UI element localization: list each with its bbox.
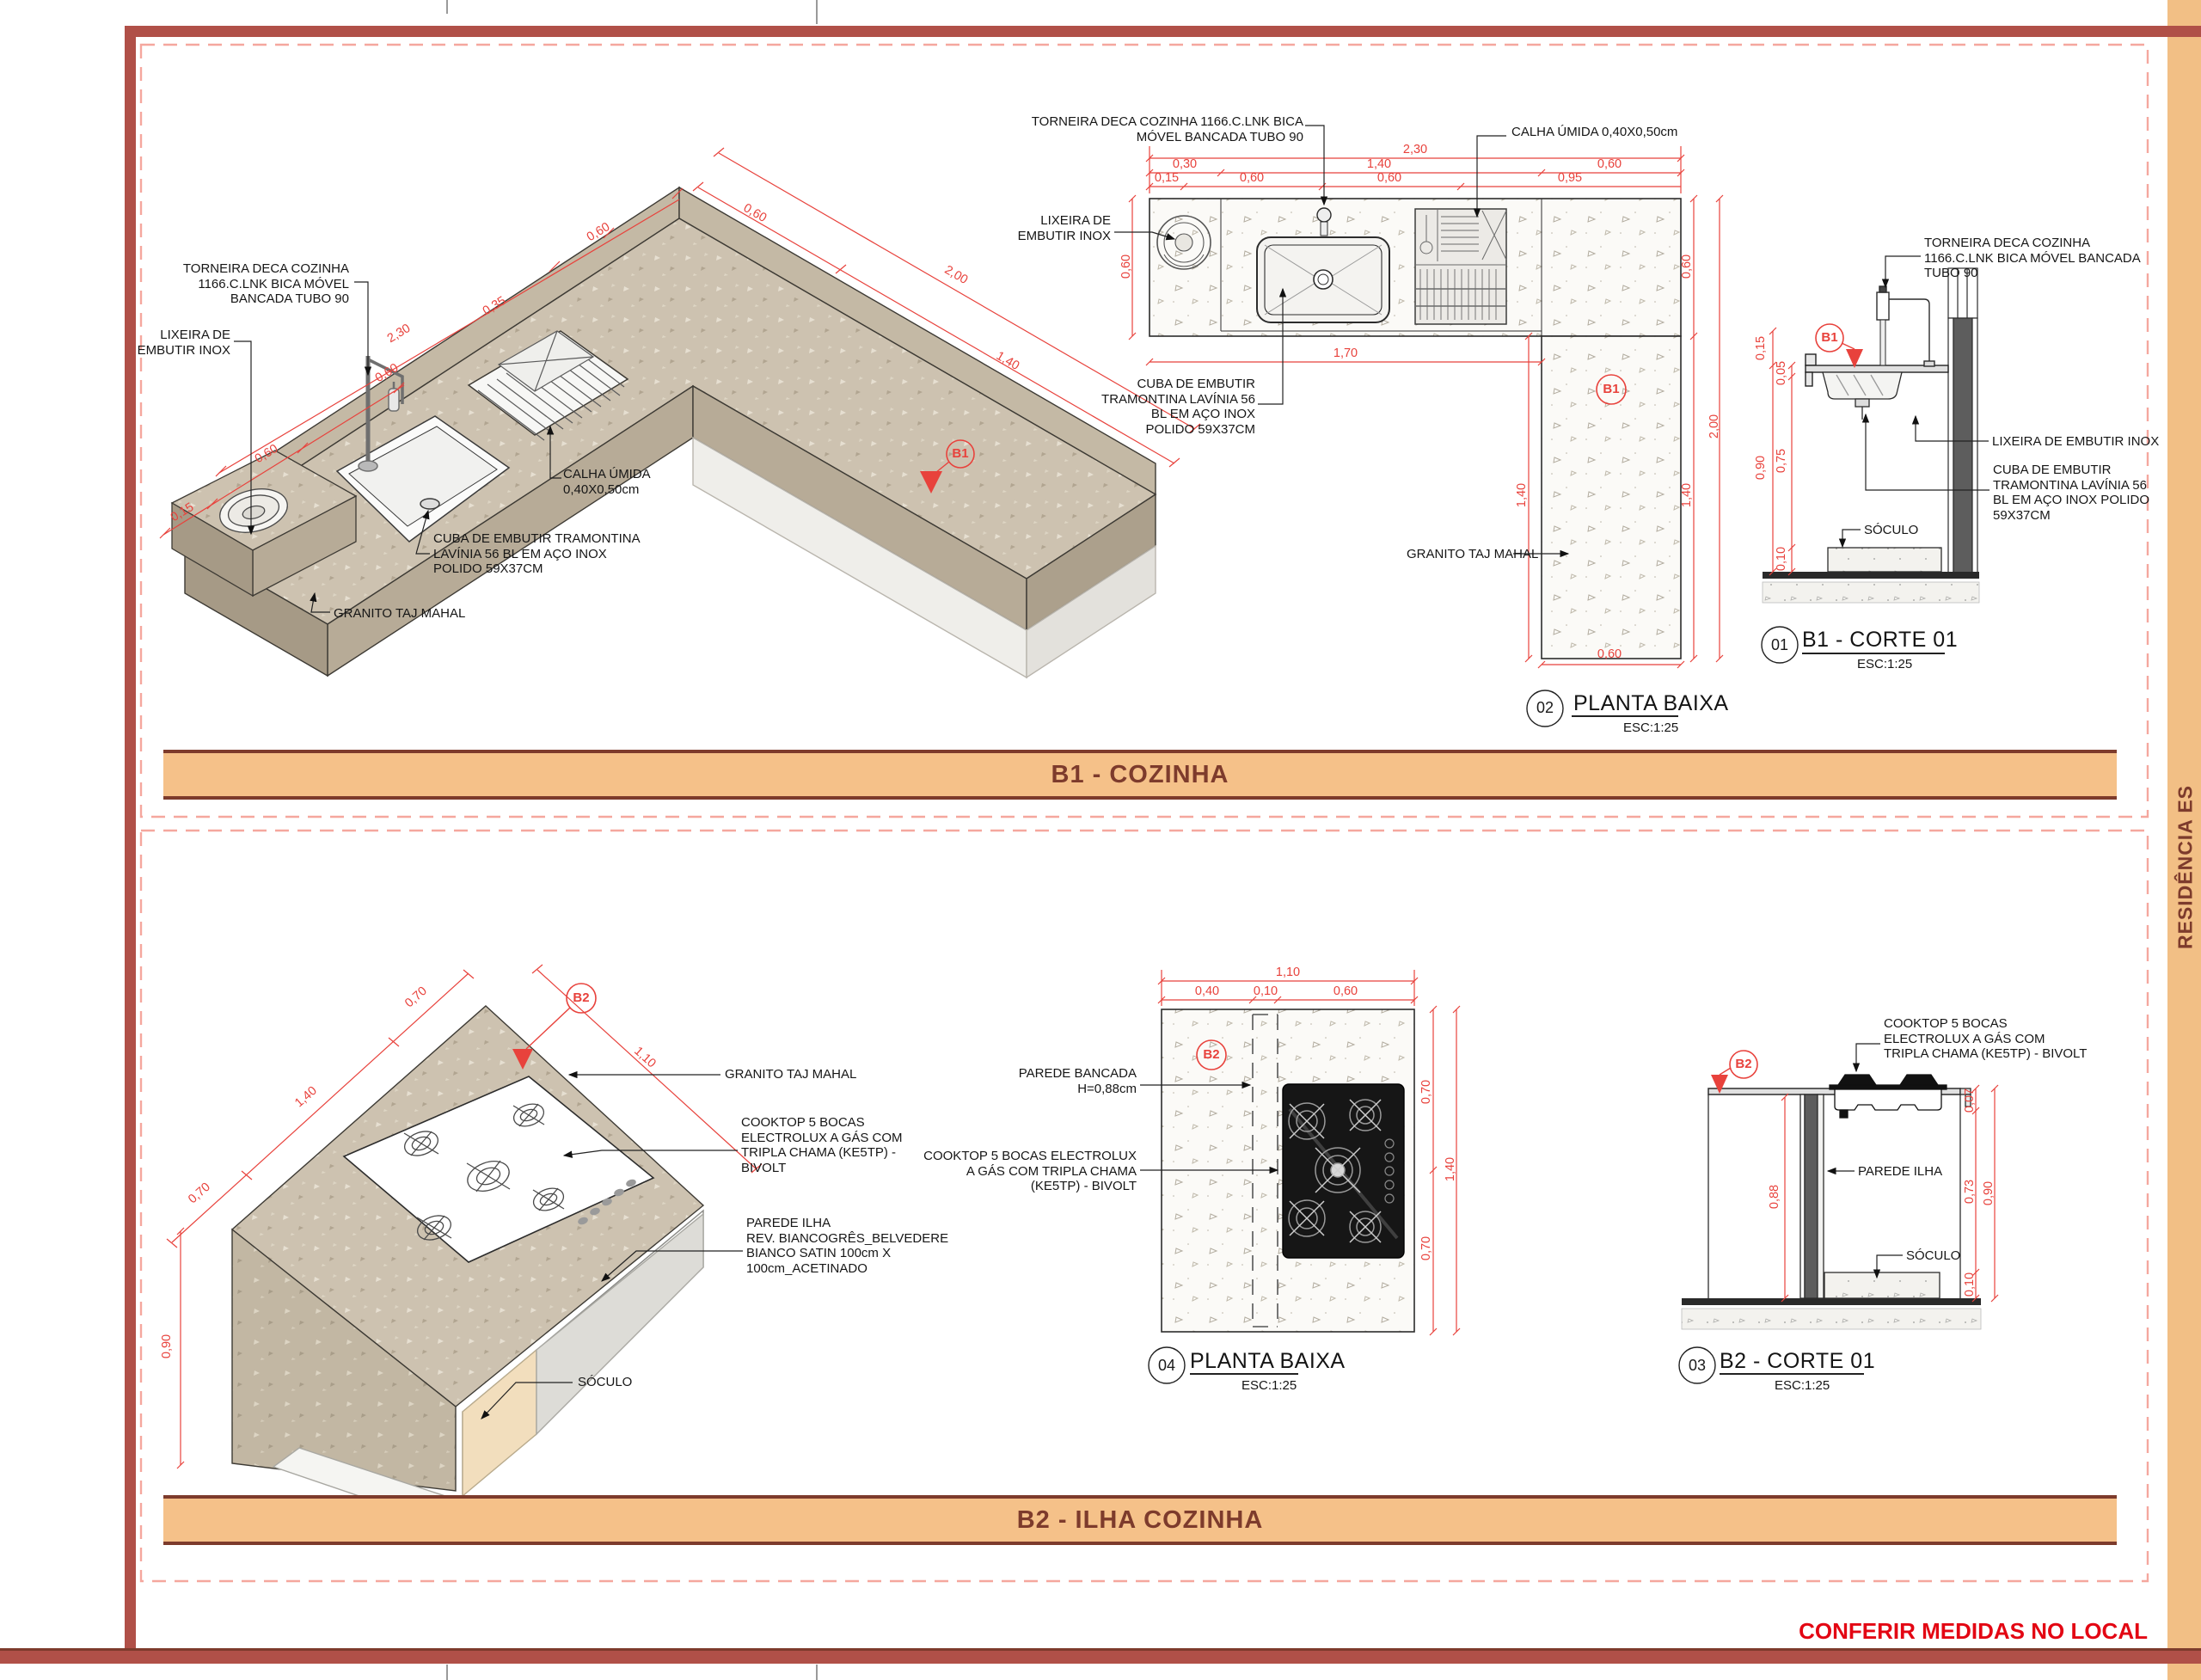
label-cuba-corte: CUBA DE EMBUTIR TRAMONTINA LAVÍNIA 56 BL…: [1993, 463, 2149, 524]
title-num-02: 02: [1526, 699, 1564, 717]
dim: 0,70: [1419, 1073, 1433, 1111]
dim: 0,70: [1419, 1229, 1433, 1267]
marker-b2-iso: B2: [562, 990, 600, 1005]
marker-b1-corte: B1: [1811, 330, 1848, 345]
marker-b1-iso: B1: [941, 446, 979, 461]
dim: 0,07: [1963, 1082, 1977, 1119]
sheet-border-top: [125, 26, 2201, 37]
drawing-sheet: RESIDÊNCIA ES CONFERIR MEDIDAS NO LOCAL …: [0, 0, 2201, 1680]
dim: 0,75: [1775, 442, 1788, 480]
title-corte-01: B1 - CORTE 01: [1802, 628, 1958, 653]
faucet-section: [1877, 286, 1934, 366]
sheet-border-bottom: [0, 1648, 2201, 1664]
dim: 0,60: [1680, 248, 1694, 285]
dim: 2,30: [1396, 143, 1434, 156]
marker-b2-corte: B2: [1725, 1057, 1763, 1071]
scale-04: ESC:1:25: [1242, 1378, 1297, 1393]
label-cooktop-corte2: COOKTOP 5 BOCAS ELECTROLUX A GÁS COM TRI…: [1884, 1016, 2087, 1062]
marker-b1-plan: B1: [1592, 382, 1630, 396]
soculo-b1: [1828, 548, 1941, 572]
scale-03: ESC:1:25: [1775, 1378, 1830, 1393]
label-lixeira-corte: LIXEIRA DE EMBUTIR INOX: [1992, 434, 2159, 450]
drying-rack-plan: [1415, 209, 1506, 324]
b2-corte-floor: [1682, 1298, 1981, 1329]
dim: 1,40: [1680, 476, 1694, 514]
dim: 0,60: [1327, 984, 1364, 998]
label-calha-plan: CALHA ÚMIDA 0,40X0,50cm: [1511, 125, 1677, 140]
b2-iso-drawing: [167, 965, 762, 1517]
label-parede-plan2: PAREDE BANCADA H=0,88cm: [1019, 1066, 1137, 1096]
cooktop-plan: [1283, 1084, 1404, 1258]
b1-corte-drawing: [1762, 256, 1989, 663]
label-granito-iso: GRANITO TAJ MAHAL: [334, 606, 465, 622]
dim: 0,90: [1754, 449, 1768, 487]
dim: 1,40: [1444, 1150, 1457, 1188]
site-check-note: CONFERIR MEDIDAS NO LOCAL: [1799, 1618, 2148, 1645]
label-soculo-iso2: SÓCULO: [578, 1375, 632, 1390]
label-calha-iso: CALHA ÚMIDA 0,40X0,50cm: [563, 467, 651, 497]
scale-01: ESC:1:25: [1857, 657, 1912, 671]
dim: 0,15: [1754, 329, 1768, 367]
dim: 0,90: [1982, 1174, 1996, 1212]
banner-b1-label: B1 - COZINHA: [1051, 761, 1229, 789]
dim: 1,10: [1269, 966, 1307, 979]
label-cooktop-plan2: COOKTOP 5 BOCAS ELECTROLUX A GÁS COM TRI…: [923, 1149, 1137, 1194]
label-torneira-iso: TORNEIRA DECA COZINHA 1166.C.LNK BICA MÓ…: [183, 261, 349, 307]
dim: 0,60: [1370, 171, 1408, 185]
banner-b1: B1 - COZINHA: [163, 750, 2117, 800]
label-cooktop-iso2: COOKTOP 5 BOCAS ELECTROLUX A GÁS COM TRI…: [741, 1115, 903, 1176]
label-lixeira-iso: LIXEIRA DE EMBUTIR INOX: [138, 328, 230, 358]
dim: 1,70: [1327, 346, 1364, 360]
label-parede-corte2: PAREDE ILHA: [1858, 1164, 1942, 1180]
b2-plan-drawing: [1140, 970, 1460, 1383]
banner-b2-label: B2 - ILHA COZINHA: [1017, 1506, 1264, 1535]
sheet-border-left: [125, 26, 136, 1651]
b1-corte-floor: [1763, 572, 1979, 603]
linework-layer: [0, 0, 2201, 1680]
b1-corte-wall: [1948, 268, 1977, 574]
label-soculo-corte2: SÓCULO: [1906, 1248, 1960, 1264]
dim: 0,88: [1768, 1178, 1781, 1216]
title-num-01: 01: [1761, 636, 1799, 654]
project-name: RESIDÊNCIA ES: [2174, 764, 2198, 971]
soculo-b2: [1824, 1272, 1940, 1298]
dim: 0,60: [1591, 647, 1628, 661]
title-num-03: 03: [1678, 1357, 1716, 1375]
dim: 0,05: [1775, 354, 1788, 392]
label-granito-iso2: GRANITO TAJ MAHAL: [725, 1067, 856, 1082]
dim: 0,10: [1963, 1266, 1977, 1303]
dim: 0,40: [1188, 984, 1226, 998]
dim: 0,60: [1591, 157, 1628, 171]
title-corte-03: B2 - CORTE 01: [1720, 1349, 1875, 1374]
dim: 0,10: [1247, 984, 1284, 998]
label-torneira-plan: TORNEIRA DECA COZINHA 1166.C.LNK BICA MÓ…: [1032, 114, 1303, 144]
dim: 1,40: [1360, 157, 1398, 171]
label-cuba-plan: CUBA DE EMBUTIR TRAMONTINA LAVÍNIA 56 BL…: [1101, 377, 1255, 438]
b2-corte-structure: [1708, 1088, 1971, 1298]
label-soculo-corte1: SÓCULO: [1864, 523, 1918, 538]
label-cuba-iso: CUBA DE EMBUTIR TRAMONTINA LAVÍNIA 56 BL…: [433, 531, 641, 577]
dim: 0,95: [1551, 171, 1589, 185]
b2-corte-drawing: [1679, 1044, 1998, 1383]
dim: 0,60: [1233, 171, 1271, 185]
banner-b2: B2 - ILHA COZINHA: [163, 1495, 2117, 1545]
label-lixeira-plan: LIXEIRA DE EMBUTIR INOX: [1018, 213, 1111, 243]
dim: 0,60: [1119, 248, 1133, 285]
dim: 2,00: [1707, 408, 1721, 445]
label-torneira-corte: TORNEIRA DECA COZINHA 1166.C.LNK BICA MÓ…: [1924, 236, 2141, 281]
label-parede-iso2: PAREDE ILHA REV. BIANCOGRÊS_BELVEDERE BI…: [746, 1216, 948, 1277]
cooktop-section: [1830, 1075, 1947, 1118]
title-planta-baixa-02: PLANTA BAIXA: [1573, 691, 1729, 716]
dim: 0,73: [1963, 1173, 1977, 1211]
dim: 0,15: [1148, 171, 1186, 185]
dim: 1,40: [1515, 476, 1529, 514]
dim: 0,10: [1775, 540, 1788, 578]
dim: 0,90: [160, 1327, 174, 1365]
label-granito-plan: GRANITO TAJ MAHAL: [1407, 547, 1538, 562]
title-num-04: 04: [1148, 1357, 1186, 1375]
sink-section: [1823, 372, 1902, 420]
marker-b2-plan: B2: [1192, 1047, 1230, 1062]
b1-plan-leaders: [1114, 126, 1568, 554]
scale-02: ESC:1:25: [1623, 720, 1678, 735]
dim: 0,30: [1166, 157, 1204, 171]
title-planta-baixa-04: PLANTA BAIXA: [1190, 1349, 1346, 1374]
